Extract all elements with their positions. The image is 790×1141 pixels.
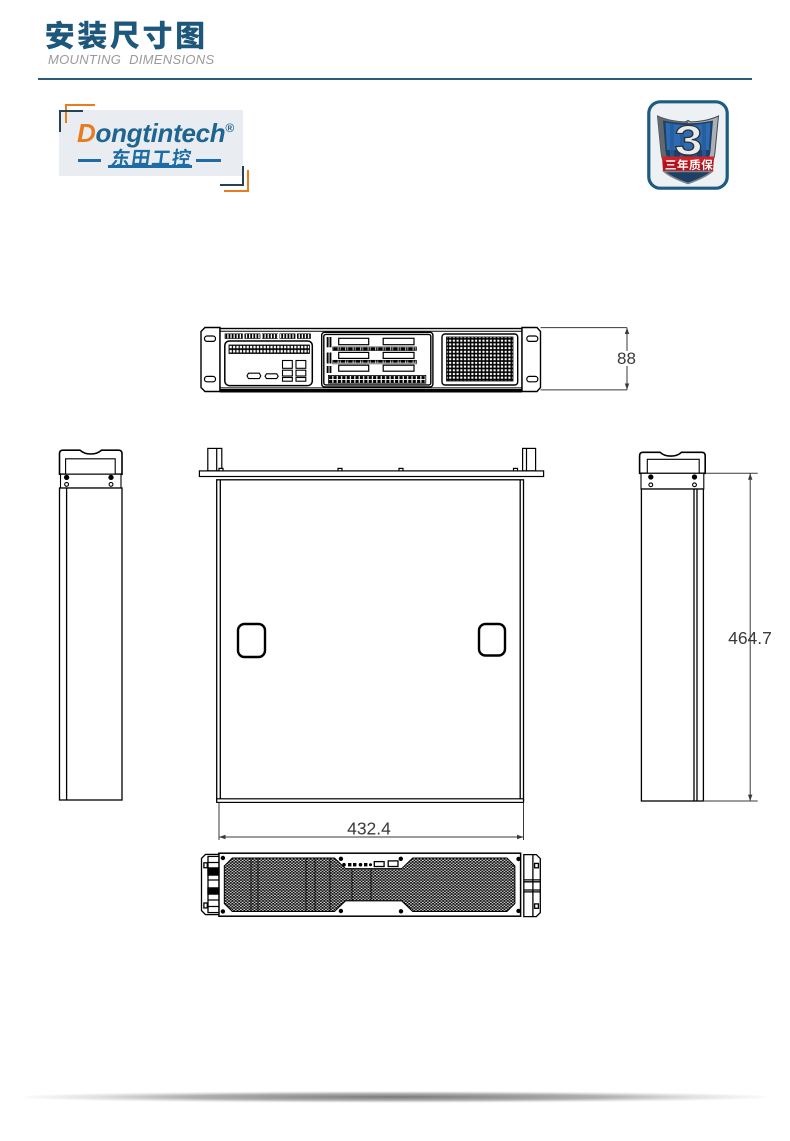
svg-text:88: 88 [617,349,636,368]
svg-text:464.7: 464.7 [728,628,772,648]
svg-text:432.4: 432.4 [347,819,391,839]
